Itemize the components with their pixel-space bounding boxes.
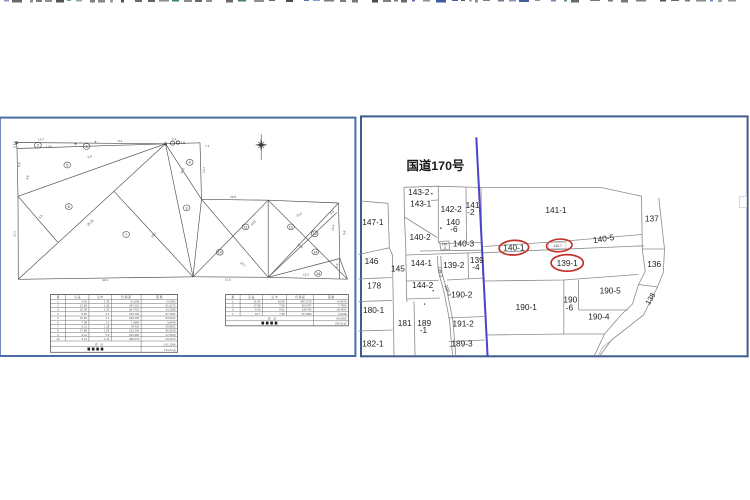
svg-text:面 積: 面 積 <box>328 295 335 299</box>
svg-text:辺 巾: 辺 巾 <box>271 295 278 299</box>
svg-text:辺 巾: 辺 巾 <box>97 295 104 299</box>
svg-text:+3.0396: +3.0396 <box>165 299 175 303</box>
svg-text:5: 5 <box>66 163 68 167</box>
svg-text:6.14: 6.14 <box>82 337 88 341</box>
svg-text:9.12: 9.12 <box>82 333 88 337</box>
svg-text:1.3: 1.3 <box>105 320 109 324</box>
svg-text:12: 12 <box>289 225 293 229</box>
svg-text:342.210: 342.210 <box>129 304 139 308</box>
svg-text:67.4331: 67.4331 <box>166 312 176 316</box>
svg-text:44.9: 44.9 <box>102 278 108 282</box>
svg-text:1.38: 1.38 <box>104 324 110 328</box>
svg-text:合 計: 合 計 <box>268 317 276 321</box>
svg-text:+4.0429: +4.0429 <box>336 299 346 303</box>
svg-text:10.38: 10.38 <box>80 308 87 312</box>
svg-text:7.7805: 7.7805 <box>338 304 347 308</box>
svg-text:番: 番 <box>231 295 234 299</box>
svg-text:225.366: 225.366 <box>129 333 139 337</box>
svg-text:146: 146 <box>365 256 379 266</box>
svg-text:7: 7 <box>125 233 127 237</box>
svg-text:151.230: 151.230 <box>129 329 139 333</box>
svg-text:番: 番 <box>57 295 60 299</box>
svg-text:1.35: 1.35 <box>104 299 110 303</box>
svg-text:1.36: 1.36 <box>104 304 110 308</box>
svg-text:-4: -4 <box>472 262 480 272</box>
svg-text:15.1: 15.1 <box>303 273 309 277</box>
svg-text:2: 2 <box>37 144 39 148</box>
svg-text:1.61.2096: 1.61.2096 <box>163 342 176 346</box>
svg-text:69.5008: 69.5008 <box>336 317 346 321</box>
svg-text:84.3442: 84.3442 <box>166 316 176 320</box>
svg-text:38.4729: 38.4729 <box>129 308 139 312</box>
svg-text:1.61.31㎡: 1.61.31㎡ <box>164 348 176 352</box>
svg-text:144-2: 144-2 <box>412 280 434 290</box>
svg-text:39.8832: 39.8832 <box>166 324 176 328</box>
svg-text:138.790: 138.790 <box>302 308 312 312</box>
svg-text:倍 横 距: 倍 横 距 <box>295 295 305 299</box>
svg-text:140-7: 140-7 <box>553 244 562 248</box>
svg-text:8.91: 8.91 <box>279 308 285 312</box>
svg-text:21.84: 21.84 <box>254 299 261 303</box>
svg-text:辺 長: 辺 長 <box>74 295 81 299</box>
svg-text:145: 145 <box>391 263 405 273</box>
svg-text:11.2: 11.2 <box>38 137 44 141</box>
svg-text:7.98: 7.98 <box>279 304 285 308</box>
svg-text:345.105: 345.105 <box>129 316 139 320</box>
svg-text:11.5: 11.5 <box>225 277 231 281</box>
svg-text:面 積: 面 積 <box>156 295 163 299</box>
svg-text:27.5169: 27.5169 <box>166 333 176 337</box>
svg-text:辺 長: 辺 長 <box>248 295 255 299</box>
svg-text:倍 横 距: 倍 横 距 <box>121 295 131 299</box>
svg-text:-6: -6 <box>566 302 574 312</box>
svg-text:-6: -6 <box>450 224 458 234</box>
svg-text:147-1: 147-1 <box>362 217 384 227</box>
svg-text:6.45: 6.45 <box>82 299 88 303</box>
svg-text:7.38: 7.38 <box>279 312 285 316</box>
svg-text:17.88: 17.88 <box>254 304 261 308</box>
svg-text:142-2: 142-2 <box>441 204 463 214</box>
svg-text:10: 10 <box>56 337 60 341</box>
svg-text:6.9: 6.9 <box>17 162 21 167</box>
svg-text:12.7: 12.7 <box>202 167 206 173</box>
svg-text:288.279: 288.279 <box>129 337 139 341</box>
svg-text:12.84: 12.84 <box>80 304 87 308</box>
svg-text:13: 13 <box>313 232 317 236</box>
svg-text:1.28: 1.28 <box>104 329 110 333</box>
svg-text:10.7: 10.7 <box>255 312 261 316</box>
svg-text:10.82: 10.82 <box>80 316 87 320</box>
svg-text:19.2368: 19.2368 <box>166 308 176 312</box>
svg-text:180-1: 180-1 <box>363 305 385 315</box>
svg-text:7.4: 7.4 <box>205 144 210 148</box>
svg-text:-2: -2 <box>467 207 475 217</box>
svg-text:17.88: 17.88 <box>80 329 87 333</box>
svg-text:2.2: 2.2 <box>105 312 109 316</box>
svg-text:11: 11 <box>244 225 248 229</box>
svg-text:29.9: 29.9 <box>230 195 236 199</box>
svg-text:189-3: 189-3 <box>451 339 473 349</box>
svg-text:609.91㎡: 609.91㎡ <box>335 322 346 326</box>
svg-text:190-5: 190-5 <box>600 285 622 295</box>
svg-text:41.608: 41.608 <box>131 299 140 303</box>
svg-text:7.98: 7.98 <box>82 320 88 324</box>
svg-text:6: 6 <box>68 205 70 209</box>
svg-text:181: 181 <box>398 318 412 328</box>
svg-text:143-1: 143-1 <box>410 199 432 209</box>
svg-text:国道170号: 国道170号 <box>407 158 465 173</box>
svg-text:4.8: 4.8 <box>181 141 186 145</box>
svg-text:4: 4 <box>189 161 191 165</box>
svg-text:5.9: 5.9 <box>105 333 109 337</box>
svg-text:11.1: 11.1 <box>12 231 16 237</box>
svg-text:7.2884: 7.2884 <box>131 320 140 324</box>
svg-text:8.2: 8.2 <box>118 139 123 143</box>
svg-text:3: 3 <box>85 145 87 149</box>
svg-text:63.4276: 63.4276 <box>166 337 176 341</box>
svg-text:16.95: 16.95 <box>278 299 285 303</box>
svg-text:137: 137 <box>645 213 659 223</box>
svg-text:136: 136 <box>647 259 661 269</box>
svg-text:143-2: 143-2 <box>408 187 430 197</box>
svg-text:1.25: 1.25 <box>104 308 110 312</box>
svg-text:35.7894: 35.7894 <box>302 312 312 316</box>
svg-text:1.32: 1.32 <box>104 337 110 341</box>
svg-text:18.4964: 18.4964 <box>336 308 346 312</box>
svg-text:182-1: 182-1 <box>362 339 384 349</box>
svg-text:191-2: 191-2 <box>452 318 474 328</box>
svg-text:139-2: 139-2 <box>443 260 465 270</box>
svg-text:合 計: 合 計 <box>95 342 103 346</box>
svg-text:141-1: 141-1 <box>545 205 567 215</box>
svg-text:144-1: 144-1 <box>411 258 433 268</box>
svg-text:140-2: 140-2 <box>409 232 431 242</box>
svg-text:9: 9 <box>186 206 188 210</box>
svg-text:140-1: 140-1 <box>503 243 525 253</box>
svg-text:190-4: 190-4 <box>588 311 610 321</box>
svg-text:2.1: 2.1 <box>105 316 109 320</box>
svg-text:46.5108: 46.5108 <box>166 329 176 333</box>
svg-text:5.21: 5.21 <box>82 324 88 328</box>
svg-text:3.1: 3.1 <box>172 137 177 141</box>
svg-text:445.7175: 445.7175 <box>300 299 312 303</box>
svg-text:178: 178 <box>367 281 381 291</box>
svg-text:16: 16 <box>316 272 320 276</box>
svg-text:190-1: 190-1 <box>516 302 538 312</box>
svg-text:3.6446: 3.6446 <box>167 320 176 324</box>
svg-text:-4: -4 <box>443 246 446 250</box>
svg-text:140-3: 140-3 <box>453 239 475 249</box>
svg-text:8.55: 8.55 <box>82 312 88 316</box>
svg-text:5.9: 5.9 <box>335 263 339 268</box>
svg-text:81.6172: 81.6172 <box>166 304 176 308</box>
svg-text:139-1: 139-1 <box>557 258 579 268</box>
svg-text:13.6: 13.6 <box>46 144 52 148</box>
svg-text:2.8198: 2.8198 <box>338 312 347 316</box>
svg-text:190-2: 190-2 <box>451 290 473 300</box>
svg-text:6.95: 6.95 <box>255 308 261 312</box>
svg-text:14: 14 <box>313 250 317 254</box>
svg-text:-1: -1 <box>420 325 428 335</box>
svg-text:10: 10 <box>218 251 222 255</box>
svg-text:78.428: 78.428 <box>131 324 140 328</box>
svg-text:98.0787: 98.0787 <box>302 304 312 308</box>
svg-text:159.764: 159.764 <box>129 312 139 316</box>
